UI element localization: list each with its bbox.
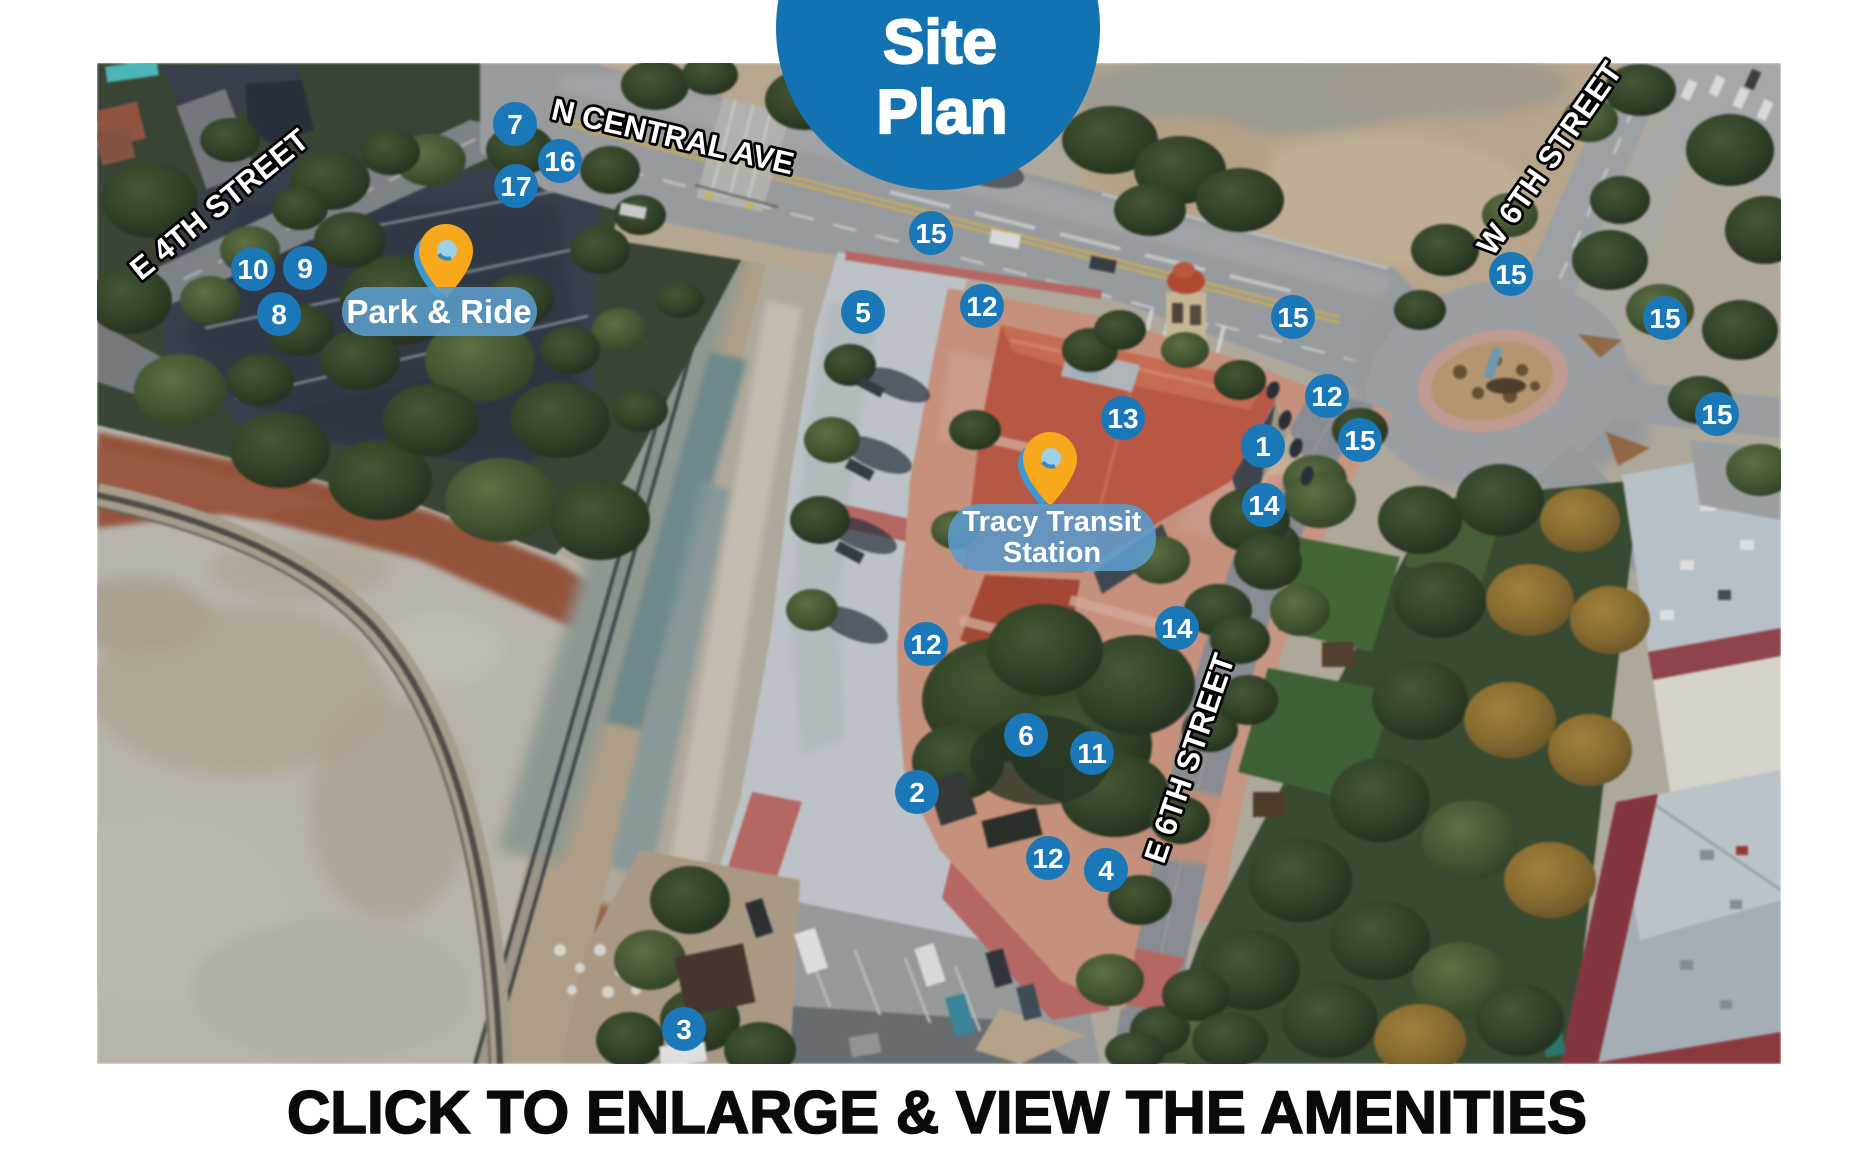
svg-text:7: 7 [507, 109, 523, 140]
svg-text:13: 13 [1107, 403, 1138, 434]
svg-text:12: 12 [966, 291, 997, 322]
svg-text:Tracy Transit: Tracy Transit [963, 506, 1142, 538]
svg-text:CLICK TO ENLARGE & VIEW THE AM: CLICK TO ENLARGE & VIEW THE AMENITIES [287, 1079, 1587, 1146]
svg-text:15: 15 [1277, 302, 1308, 333]
svg-text:12: 12 [910, 629, 941, 660]
svg-text:4: 4 [1098, 855, 1114, 886]
svg-text:2: 2 [909, 777, 925, 808]
svg-text:8: 8 [271, 299, 287, 330]
svg-text:15: 15 [1701, 399, 1732, 430]
svg-text:Station: Station [1003, 537, 1101, 569]
svg-text:1: 1 [1255, 431, 1271, 462]
svg-text:15: 15 [1495, 259, 1526, 290]
svg-text:16: 16 [544, 146, 575, 177]
svg-text:Park & Ride: Park & Ride [346, 293, 531, 330]
svg-text:6: 6 [1018, 720, 1034, 751]
svg-text:14: 14 [1161, 613, 1193, 644]
svg-text:17: 17 [500, 171, 531, 202]
svg-text:3: 3 [676, 1014, 692, 1045]
svg-text:5: 5 [855, 297, 871, 328]
svg-text:10: 10 [237, 254, 268, 285]
svg-text:9: 9 [297, 253, 313, 284]
svg-text:12: 12 [1311, 381, 1342, 412]
svg-text:11: 11 [1077, 738, 1107, 769]
svg-text:15: 15 [1649, 303, 1680, 334]
svg-text:15: 15 [915, 218, 946, 249]
svg-text:Site: Site [883, 8, 997, 77]
svg-text:Plan: Plan [877, 78, 1008, 147]
svg-text:15: 15 [1344, 425, 1375, 456]
svg-text:14: 14 [1248, 490, 1280, 521]
svg-text:12: 12 [1032, 843, 1063, 874]
